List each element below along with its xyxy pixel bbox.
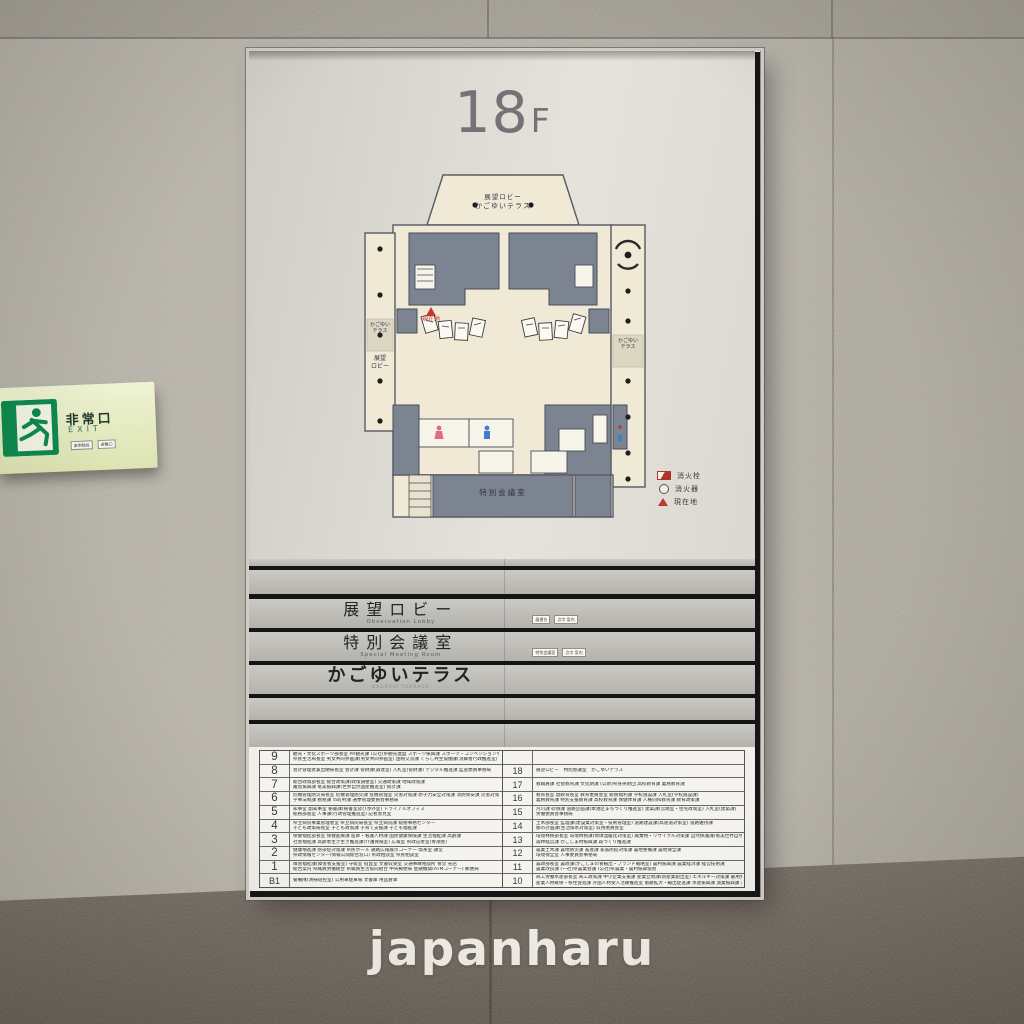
directory-row: 13環境林務部長室 環境林務課(地球温暖化対策室) 廃棄物・リサイクル対策課 自…: [503, 833, 745, 847]
floor-number: 8: [260, 765, 290, 778]
directory-column-right: 18展望ロビー 特別会議室 かごゆいテラス17教職員課 社会教育課 文化財課 (…: [503, 751, 745, 887]
nameplate-en: Observation Lobby: [274, 619, 527, 625]
nameplate-en: Special Meeting Room: [274, 652, 527, 658]
small-tag: 点字 案内: [554, 615, 577, 624]
floor-number: 6: [260, 792, 290, 805]
nameplate-en: KAGOYUI TERRACE: [274, 685, 527, 691]
tile-seam: [832, 38, 834, 870]
floor-departments: 知事室 副知事室 秘書課(秘書室及び渉外室) トライアルオフィス総務部長室 人事…: [290, 806, 502, 819]
nameplate-section: 展望ロビー Observation Lobby 展望台点字 案内 特別会議室 S…: [249, 559, 755, 747]
legend-label: 現在地: [674, 497, 698, 507]
current-location-icon: [658, 498, 668, 506]
directory-row: 4県立病院事業管理者室 県立病院局長室 県立病院課 総務事務センター子ども政策局…: [260, 820, 502, 834]
blank-slat: [249, 724, 755, 747]
directory-row: 12農業土木課 農地防災課 畜産課 家畜防疫対策課 農地整備課 農地保全課環境保…: [503, 847, 745, 861]
nameplate-observation-lobby: 展望ロビー Observation Lobby 展望台点字 案内: [249, 599, 755, 628]
directory-row: 10商工労働水産部長室 商工政策課 中小企業支援課 産業立地課(新産業創出室) …: [503, 874, 745, 887]
floor-map-panel: 18F: [249, 51, 755, 559]
nameplate-special-meeting-room: 特別会議室 Special Meeting Room 特別会議室点字 案内: [249, 632, 755, 661]
directory-row: 11農政部長室 農政課(かごしまの食輸出・ブランド戦略室) 農村振興課 農業経済…: [503, 861, 745, 875]
running-man-exit-icon: [1, 399, 59, 457]
legend-item: 現在地: [657, 495, 753, 508]
nameplate-tags: 特別会議室点字 案内: [532, 648, 585, 657]
directory-column-left: 9観光・文化スポーツ部長室 PR観光課 (公社)県観光連盟 スポーツ振興課 スポ…: [260, 751, 503, 887]
legend-item: 消火器: [657, 482, 753, 495]
small-tag: 避難口: [98, 439, 116, 449]
legend-item: 消火栓: [657, 469, 753, 482]
nameplate-jp: 展望ロビー: [274, 600, 527, 619]
nameplate-tags: 展望台点字 案内: [532, 615, 577, 624]
floor-number: 4: [260, 820, 290, 833]
exit-tags: 東側階段避難口: [71, 439, 116, 450]
floor-number: 16: [503, 792, 533, 805]
tile-seam: [487, 0, 489, 38]
floor-departments: 展望ロビー 特別会議室 かごゆいテラス: [533, 765, 745, 778]
directory-table: 9観光・文化スポーツ部長室 PR観光課 (公社)県観光連盟 スポーツ振興課 スポ…: [259, 750, 745, 888]
floor-departments: 保健福祉部長室 保健医療課 医師・看護人材課 国民健康保険課 生活福祉課 高齢課…: [290, 833, 502, 846]
floor-number: 15: [503, 806, 533, 819]
floor-departments: 警備隊(清掃班控室) 公用車駐車場 文書庫 用品倉庫: [290, 874, 502, 887]
fire-extinguisher-icon: [659, 484, 669, 494]
floor-plan: 展望ロビー かごゆいテラス 現在地 かごゆい テラス 展望 ロビー かごゆい テ…: [353, 169, 653, 521]
directory-row: 6危機管理防災局長室 危機管理防災課 危機管理室 災害対策課 原子力安全対策課 …: [260, 792, 502, 806]
directory-row: 14土木部長室 監理課(建設業対策室・技術管理室) 道路建設課(高速道対策室) …: [503, 820, 745, 834]
floor-number: 11: [503, 861, 533, 874]
directory-row: 1障害福祉課(障害者支援室) 守衛室 宿直室 文書収受室 交通事故相談所 食堂 …: [260, 861, 502, 875]
directory-row: 17教職員課 社会教育課 文化財課 (公財)県育英財団 高校教育課 義務教育課: [503, 778, 745, 792]
plan-label-left-terrace: かごゆい テラス: [366, 322, 394, 335]
floor-departments: [533, 751, 745, 764]
directory-row: 3保健福祉部長室 保健医療課 医師・看護人材課 国民健康保険課 生活福祉課 高齢…: [260, 833, 502, 847]
emergency-exit-sign: 非常口 EXIT 東側階段避難口: [0, 382, 158, 475]
directory-row: 15河川課 砂防課 道路企画課(本港区まちづくり推進室) 建築課(営繕室・住宅政…: [503, 806, 745, 820]
floor-number: [503, 751, 533, 764]
floor-number: B1: [260, 874, 290, 887]
blank-slat: [249, 559, 755, 566]
directory-row: 5知事室 副知事室 秘書課(秘書室及び渉外室) トライアルオフィス総務部長室 人…: [260, 806, 502, 820]
blank-slat: [249, 698, 755, 720]
small-tag: 特別会議室: [532, 648, 558, 657]
floor-departments: 農政部長室 農政課(かごしまの食輸出・ブランド戦略室) 農村振興課 農業経済課 …: [533, 861, 745, 874]
floor-departments: 農業土木課 農地防災課 畜産課 家畜防疫対策課 農地整備課 農地保全課環境保全室…: [533, 847, 745, 860]
floor-departments: 教職員課 社会教育課 文化財課 (公財)県育英財団 高校教育課 義務教育課: [533, 778, 745, 791]
small-tag: 展望台: [532, 615, 550, 624]
directory-row: 16教育長室 副教育長室 教育委員会室 総務福利課 学校施設課 入札室(学校施設…: [503, 792, 745, 806]
floor-number: 9: [260, 751, 290, 764]
tile-seam: [831, 0, 833, 38]
floor-departments: 県立病院事業管理者室 県立病院局長室 県立病院課 総務事務センター子ども政策局長…: [290, 820, 502, 833]
floor-number: 2: [260, 847, 290, 860]
directory-row: 2健康増進課 感染症対策課 県民ホール 通路広報展示コーナー 喫茶室 講堂県政情…: [260, 847, 502, 861]
floor-number-large: 18: [454, 80, 529, 146]
floor-departments: 土木部長室 監理課(建設業対策室・技術管理室) 道路建設課(高速道対策室) 道路…: [533, 820, 745, 833]
directory-row: 9観光・文化スポーツ部長室 PR観光課 (公社)県観光連盟 スポーツ振興課 スポ…: [260, 751, 502, 765]
blank-slat: [249, 570, 755, 594]
floor-departments: 健康増進課 感染症対策課 県民ホール 通路広報展示コーナー 喫茶室 講堂県政情報…: [290, 847, 502, 860]
floor-number: 5: [260, 806, 290, 819]
watermark: japanharu: [0, 922, 1024, 977]
wall-upper-tile: [0, 0, 1024, 38]
directory-row: 18展望ロビー 特別会議室 かごゆいテラス: [503, 765, 745, 779]
floor-departments: 環境林務部長室 環境林務課(地球温暖化対策室) 廃棄物・リサイクル対策課 自然保…: [533, 833, 745, 846]
directory-row: 8会計管理者兼出納局長室 会計課 管財課(調達室) 入札室(管財課) デジタル推…: [260, 765, 502, 779]
legend-label: 消火器: [675, 484, 699, 494]
floor-suffix: F: [531, 101, 550, 140]
floor-number: 12: [503, 847, 533, 860]
floor-number: 3: [260, 833, 290, 846]
floor-number: 13: [503, 833, 533, 846]
plan-label-kagoyui-terrace-top: かごゆいテラス: [353, 202, 653, 211]
floor-title: 18F: [249, 85, 755, 142]
plan-label-special-meeting-room: 特別会議室: [433, 488, 573, 497]
floor-guide-sign-board: 18F: [246, 48, 764, 900]
exit-label-en: EXIT: [68, 424, 102, 434]
floor-number: 10: [503, 874, 533, 887]
floor-number: 1: [260, 861, 290, 874]
plan-label-left-lobby: 展望 ロビー: [364, 355, 396, 370]
floor-number: 18: [503, 765, 533, 778]
floor-number: 17: [503, 778, 533, 791]
floor-departments: 商工労働水産部長室 商工政策課 中小企業支援課 産業立地課(新産業創出室) エネ…: [533, 874, 745, 887]
nameplate-kagoyui-terrace: かごゆいテラス KAGOYUI TERRACE: [249, 665, 755, 694]
floor-departments: 総合政策部長室 総合政策課(政策調整室) 交通政策課 地域政策課離島振興課 奄美…: [290, 778, 502, 791]
floor-plan-drawing: [353, 169, 653, 521]
floor-departments: 会計管理者兼出納局長室 会計課 管財課(調達室) 入札室(管財課) デジタル推進…: [290, 765, 502, 778]
nameplate-jp: 特別会議室: [274, 633, 527, 652]
plan-label-observation-lobby-top: 展望ロビー: [353, 193, 653, 201]
current-location-triangle-icon: [427, 309, 435, 315]
building-directory-panel: 9観光・文化スポーツ部長室 PR観光課 (公社)県観光連盟 スポーツ振興課 スポ…: [249, 747, 755, 891]
wall-right-tile: [833, 38, 1024, 870]
current-location-marker: 現在地: [409, 309, 453, 324]
tile-seam: [0, 37, 1024, 39]
floorplan-legend: 消火栓消火器現在地: [657, 469, 753, 508]
legend-label: 消火栓: [677, 471, 701, 481]
small-tag: 点字 案内: [562, 648, 585, 657]
small-tag: 東側階段: [71, 440, 93, 450]
floor-departments: 観光・文化スポーツ部長室 PR観光課 (公社)県観光連盟 スポーツ振興課 スポー…: [290, 751, 502, 764]
directory-row: B1警備隊(清掃班控室) 公用車駐車場 文書庫 用品倉庫: [260, 874, 502, 887]
directory-row: [503, 751, 745, 765]
floor-departments: 教育長室 副教育長室 教育委員会室 総務福利課 学校施設課 入札室(学校施設課)…: [533, 792, 745, 805]
floor-departments: 危機管理防災局長室 危機管理防災課 危機管理室 災害対策課 原子力安全対策課 消…: [290, 792, 502, 805]
fire-hydrant-icon: [657, 471, 671, 480]
nameplate-jp: かごゆいテラス: [274, 666, 527, 685]
directory-row: 7総合政策部長室 総合政策課(政策調整室) 交通政策課 地域政策課離島振興課 奄…: [260, 778, 502, 792]
plan-label-right-terrace: かごゆい テラス: [612, 338, 644, 351]
floor-departments: 障害福祉課(障害者支援室) 守衛室 宿直室 文書収受室 交通事故相談所 食堂 売…: [290, 861, 502, 874]
floor-number: 14: [503, 820, 533, 833]
floor-departments: 河川課 砂防課 道路企画課(本港区まちづくり推進室) 建築課(営繕室・住宅政策室…: [533, 806, 745, 819]
floor-number: 7: [260, 778, 290, 791]
